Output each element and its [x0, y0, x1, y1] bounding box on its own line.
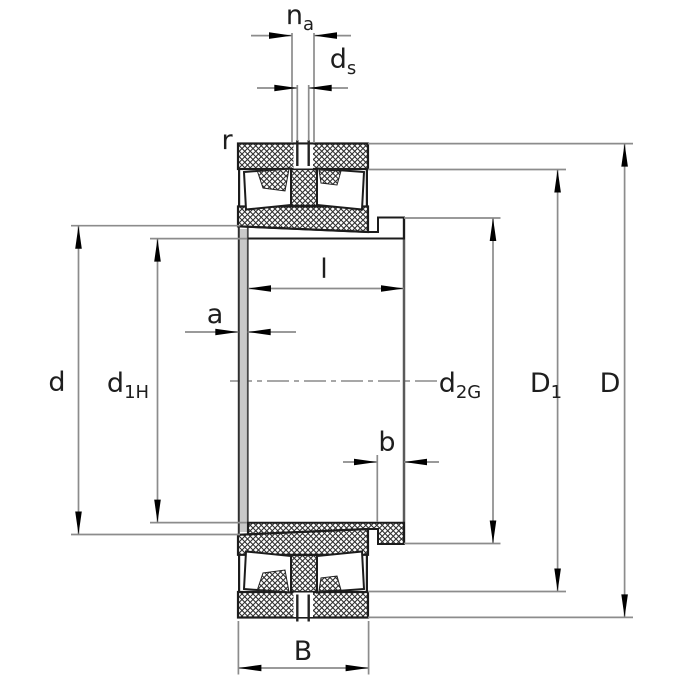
dimension-arrow — [274, 85, 297, 92]
label-D: D — [600, 368, 621, 399]
dimension-ds: ds — [257, 44, 356, 141]
dimension-arrow — [248, 285, 271, 292]
label-d: d — [48, 367, 65, 398]
top-bearing-cross-section — [238, 140, 368, 232]
label-na: na — [286, 0, 314, 35]
inner-ring-top — [238, 207, 368, 233]
dimension-arrow — [75, 226, 82, 249]
inner-ring-bottom — [238, 529, 368, 555]
label-ds: ds — [330, 44, 357, 79]
dimension-arrow — [346, 665, 369, 672]
dimension-arrow — [314, 32, 337, 39]
bearing-technical-drawing: na ds r l a d — [0, 0, 680, 680]
dimension-arrow — [554, 569, 561, 592]
bottom-bearing-cross-section — [238, 529, 368, 622]
dimension-arrow — [269, 32, 292, 39]
dimension-arrow — [490, 521, 497, 544]
dimension-d: d — [48, 226, 240, 535]
dimension-l: l — [248, 254, 404, 292]
dimension-arrow — [354, 459, 377, 466]
cage-segment — [319, 576, 341, 591]
sleeve-left-face-band — [240, 229, 247, 532]
label-b: b — [378, 427, 395, 458]
dimension-arrow — [75, 512, 82, 535]
cage-segment — [319, 170, 341, 185]
dimension-d1H: d1H — [107, 239, 247, 523]
label-a: a — [207, 299, 224, 330]
dimension-b: b — [343, 427, 439, 522]
label-d2G: d2G — [439, 368, 482, 403]
dimension-arrow — [238, 665, 261, 672]
dimension-arrow — [309, 85, 332, 92]
dimension-arrow — [154, 500, 161, 523]
dimension-arrow — [248, 329, 271, 336]
label-r: r — [221, 125, 233, 156]
dimension-arrow — [381, 285, 404, 292]
dimension-arrow — [490, 218, 497, 241]
dimension-arrow — [621, 144, 628, 167]
dimension-arrow — [154, 239, 161, 262]
label-l: l — [320, 254, 328, 285]
label-d1H: d1H — [107, 368, 149, 403]
dimension-arrow — [621, 594, 628, 617]
dimension-B: B — [238, 621, 368, 675]
label-B: B — [294, 636, 313, 667]
dimension-arrow — [554, 170, 561, 193]
dimension-arrow — [404, 459, 427, 466]
